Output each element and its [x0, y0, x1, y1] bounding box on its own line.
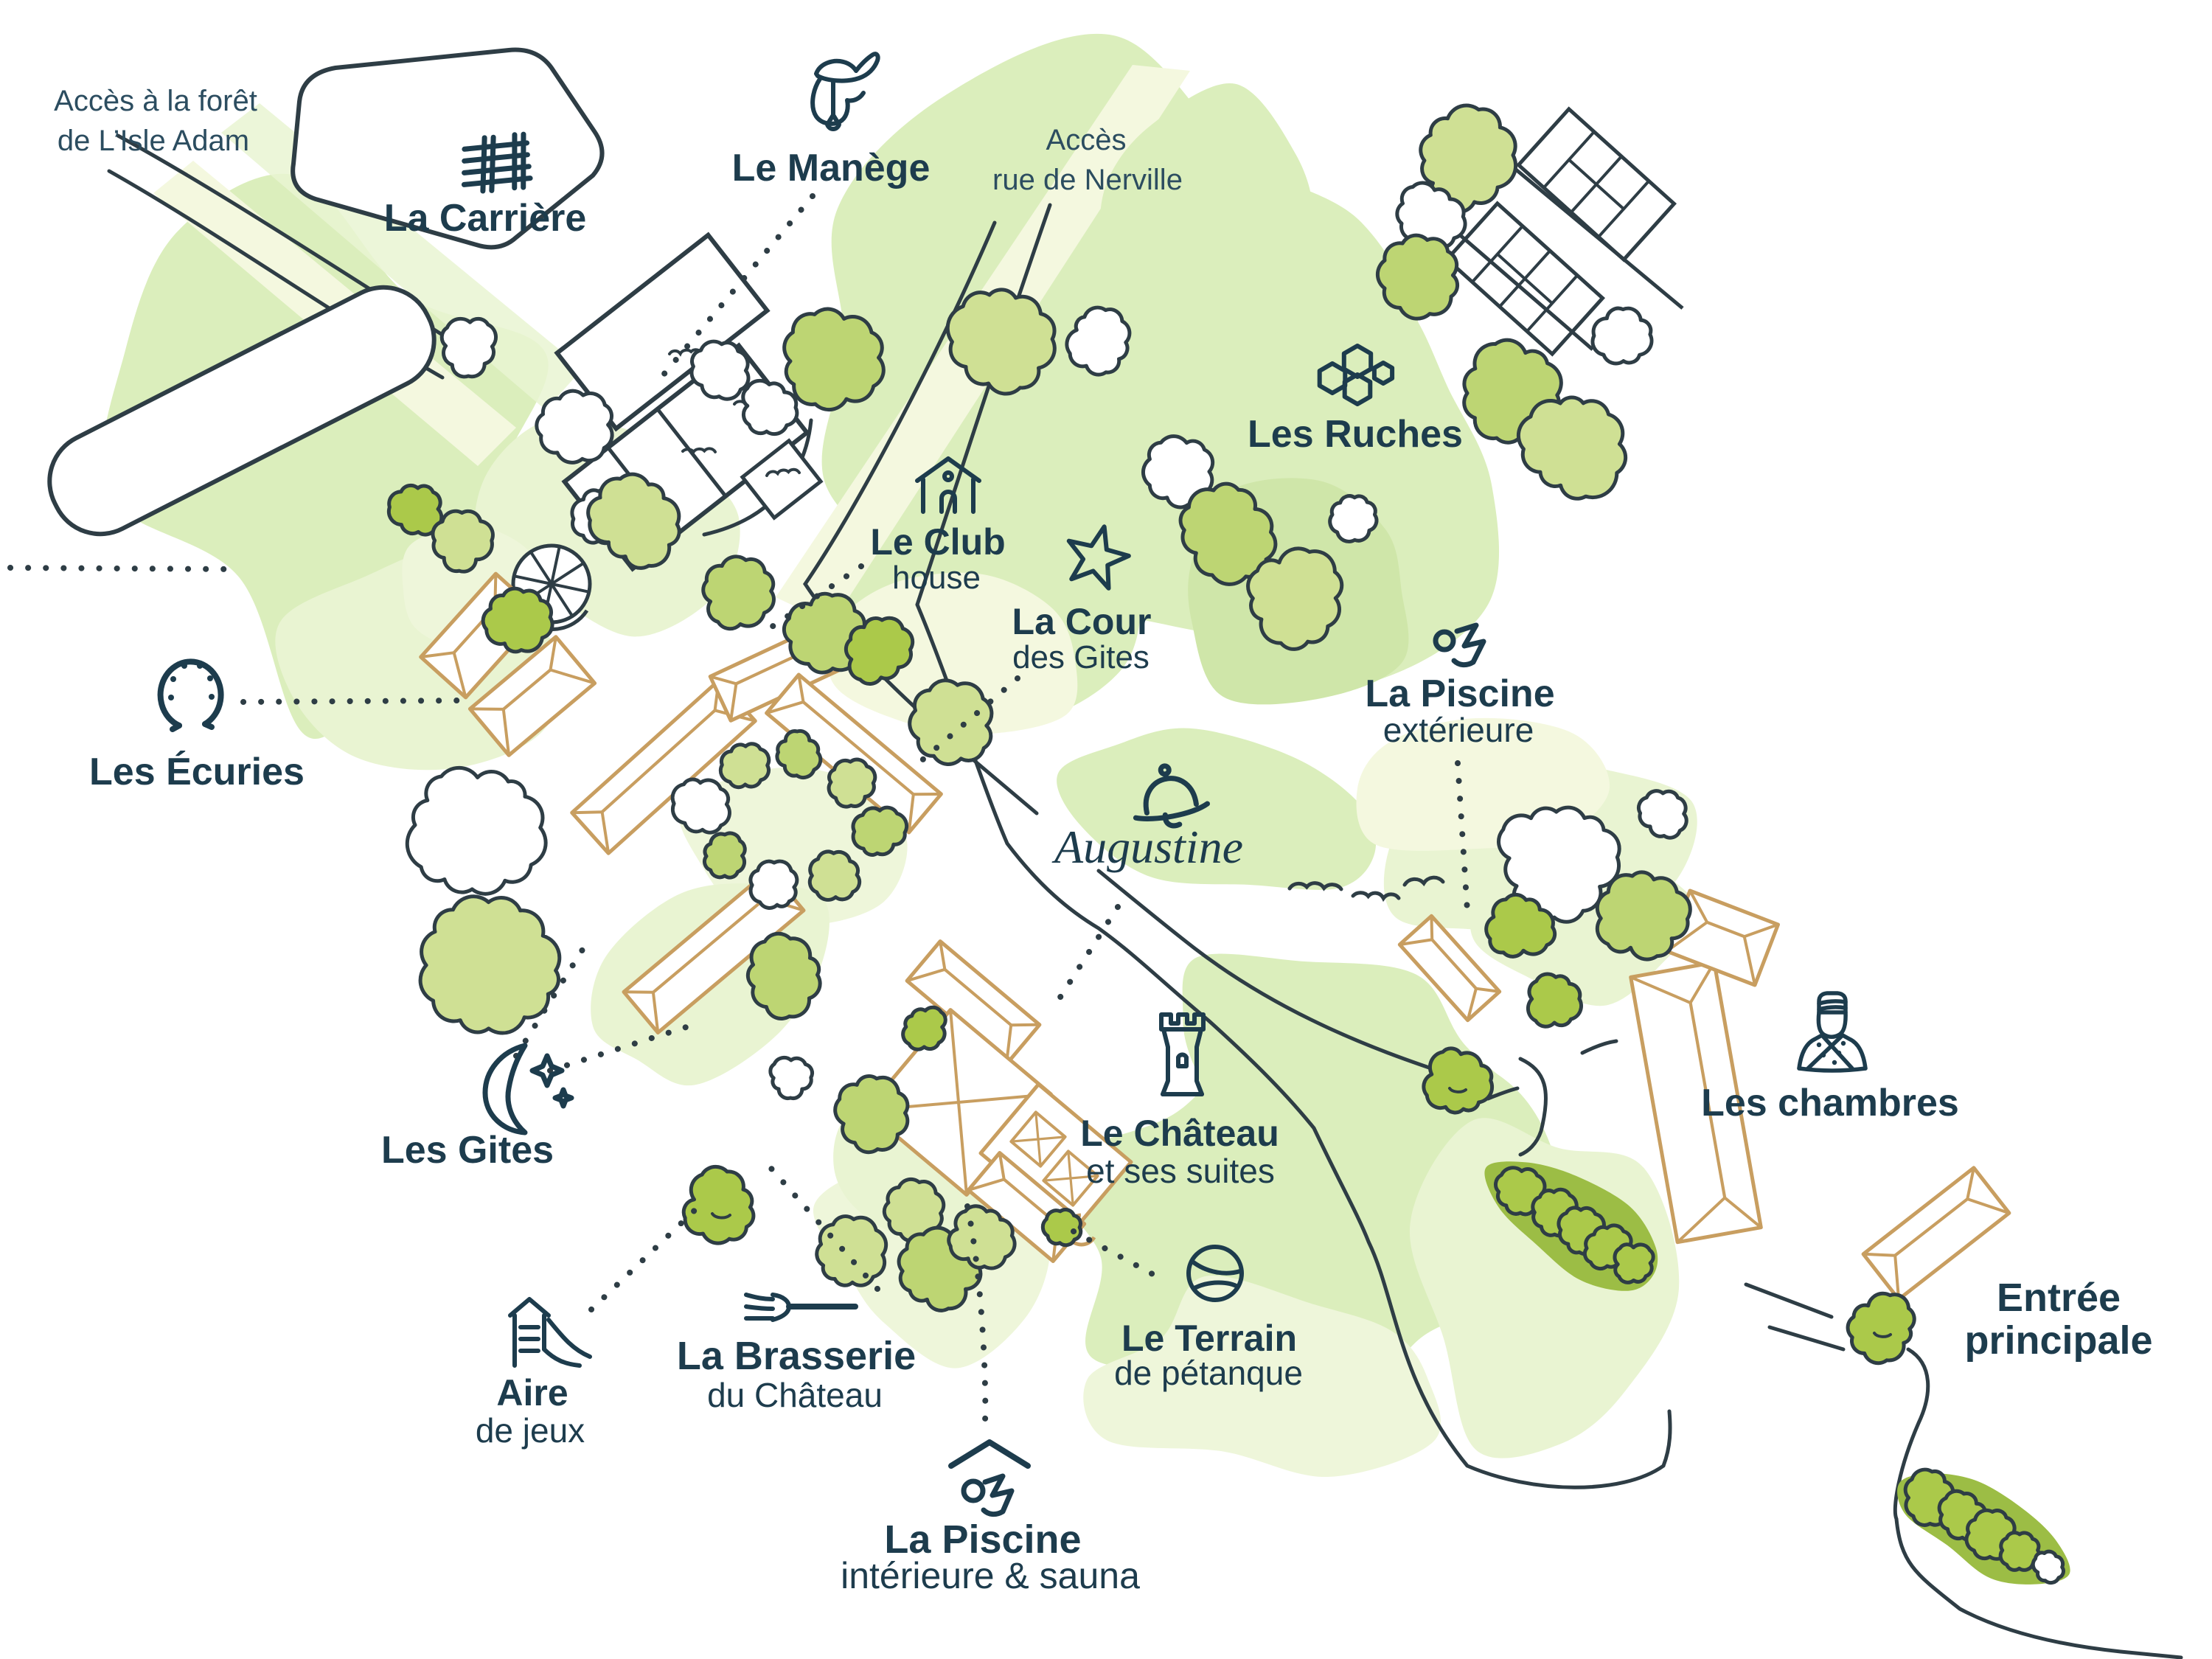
svg-text:Le Terrain: Le Terrain	[1121, 1318, 1297, 1359]
svg-text:Le Château: Le Château	[1080, 1113, 1279, 1154]
svg-text:de jeux: de jeux	[476, 1411, 585, 1450]
svg-text:Augustine: Augustine	[1051, 821, 1243, 873]
svg-text:Le Manège: Le Manège	[732, 147, 931, 189]
svg-text:Les Écuries: Les Écuries	[89, 751, 305, 793]
svg-text:Les Ruches: Les Ruches	[1248, 413, 1463, 456]
svg-text:house: house	[892, 560, 981, 596]
svg-text:Accès: Accès	[1046, 124, 1127, 156]
svg-text:Entrée: Entrée	[1997, 1276, 2121, 1320]
svg-text:Les Gites: Les Gites	[381, 1129, 554, 1172]
svg-text:des Gites: des Gites	[1012, 639, 1150, 675]
svg-text:intérieure & sauna: intérieure & sauna	[841, 1555, 1140, 1596]
svg-text:du Château: du Château	[707, 1376, 883, 1414]
svg-text:La Cour: La Cour	[1012, 601, 1152, 642]
svg-text:Aire: Aire	[496, 1372, 568, 1413]
svg-text:Le Club: Le Club	[870, 521, 1005, 563]
svg-text:rue de Nerville: rue de Nerville	[992, 164, 1183, 196]
svg-text:Accès à la forêt: Accès à la forêt	[54, 85, 257, 117]
svg-text:extérieure: extérieure	[1383, 711, 1534, 749]
svg-text:de pétanque: de pétanque	[1114, 1354, 1303, 1392]
svg-text:principale: principale	[1964, 1318, 2152, 1363]
svg-text:et ses suites: et ses suites	[1086, 1152, 1275, 1190]
svg-text:Les chambres: Les chambres	[1701, 1082, 1959, 1124]
svg-text:La Piscine: La Piscine	[1365, 672, 1554, 715]
svg-text:La Brasserie: La Brasserie	[677, 1334, 916, 1378]
svg-text:La Carrière: La Carrière	[384, 197, 587, 240]
svg-text:de L’Isle Adam: de L’Isle Adam	[58, 125, 249, 157]
